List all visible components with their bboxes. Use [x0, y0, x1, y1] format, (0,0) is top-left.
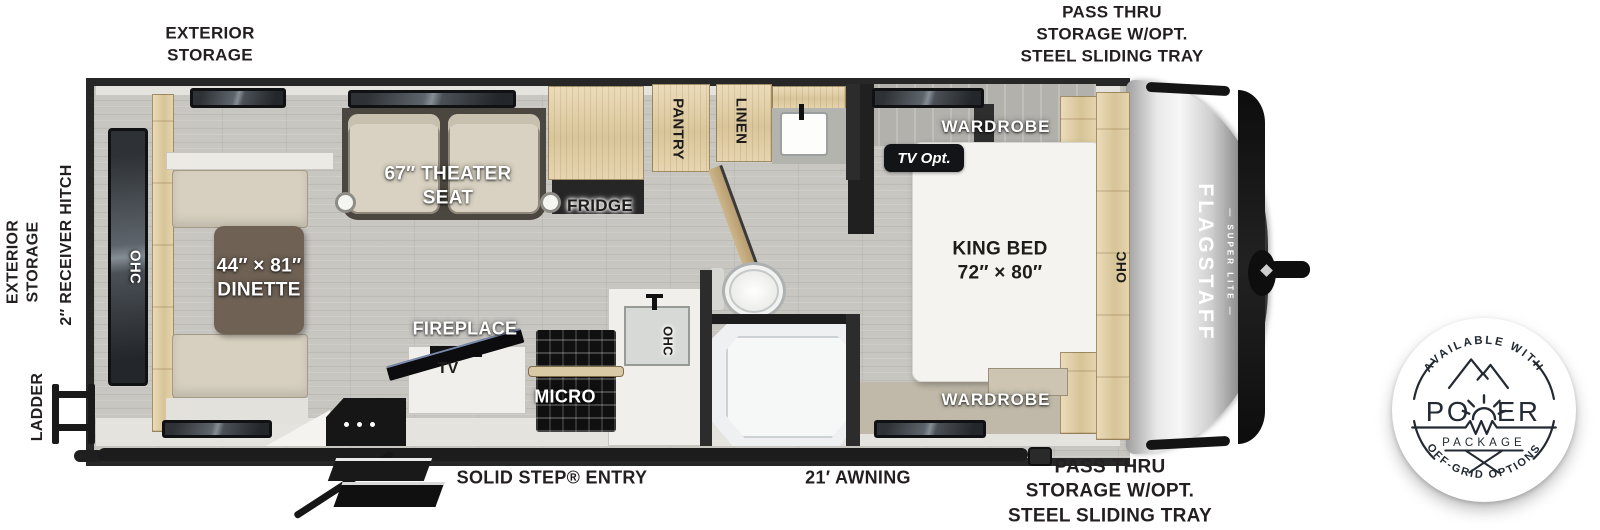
shower-pan-inner	[726, 336, 850, 438]
bath-faucet	[799, 104, 804, 120]
badge-power-left: PO	[1426, 396, 1471, 427]
counter-knob-1	[344, 422, 349, 427]
fridge-cabinet	[548, 86, 644, 180]
label-micro: MICRO	[534, 385, 596, 408]
label-awning: 21′ AWNING	[805, 466, 911, 489]
oven-handle	[528, 366, 624, 377]
label-linen: LINEN	[731, 98, 750, 145]
kitchen-faucet-bar	[646, 294, 663, 298]
tv-opt-label: TV Opt.	[884, 144, 964, 172]
label-ohc-bed: OHC	[1113, 251, 1131, 283]
counter-knob-2	[357, 422, 362, 427]
label-ladder: LADDER	[28, 373, 48, 441]
ladder-rung-bottom	[56, 424, 92, 431]
label-fridge: FRIDGE	[567, 195, 633, 217]
vanity-top	[772, 86, 846, 110]
kitchen-sink	[624, 306, 690, 366]
awning-bar	[98, 448, 1028, 461]
ladder-rung-top	[56, 391, 92, 398]
label-dinette: 44″ × 81″ DINETTE	[217, 255, 302, 304]
kitchen-faucet	[652, 296, 657, 310]
range-micro-unit	[536, 330, 616, 432]
dinette-top-window	[190, 88, 286, 108]
bath-wall-right-bottom	[846, 314, 860, 446]
bath-wall-right-top	[846, 84, 860, 180]
tv-opt-badge: TV Opt.	[884, 144, 964, 172]
label-receiver-hitch: 2″ RECEIVER HITCH	[57, 164, 77, 325]
label-tv: TV	[437, 359, 458, 379]
label-exterior-storage-left: EXTERIOR STORAGE	[4, 220, 45, 304]
badge-package-text: PACKAGE	[1442, 437, 1526, 449]
label-ohc-rear: OHC	[125, 250, 144, 284]
label-king-bed: KING BED 72″ × 80″	[952, 238, 1047, 287]
label-pass-thru-bottom: PASS THRU STORAGE W/OPT. STEEL SLIDING T…	[1008, 456, 1212, 529]
cupholder-left	[335, 192, 356, 213]
bath-wall-left	[700, 270, 712, 446]
flagstaff-logo: FLAGSTAFF	[1193, 183, 1217, 342]
ladder-icon	[52, 384, 98, 444]
badge-arc-top-text: AVAILABLE WITH	[1422, 335, 1546, 375]
label-ohc-kitchen: OHC	[659, 326, 676, 356]
counter-knob-3	[370, 422, 375, 427]
bedroom-top-window	[872, 88, 984, 108]
dinette-shelf	[166, 152, 334, 170]
mountains-icon	[1449, 359, 1508, 388]
shower-rail	[712, 314, 860, 324]
entry-step-1	[328, 458, 432, 481]
svg-text:AVAILABLE WITH: AVAILABLE WITH	[1422, 335, 1546, 375]
label-pantry: PANTRY	[668, 98, 687, 160]
badge-power-right: ER	[1497, 396, 1541, 427]
label-wardrobe-bottom: WARDROBE	[941, 389, 1050, 411]
rear-ohc-cabinets	[152, 94, 174, 432]
label-theater-seat: 67″ THEATER SEAT	[384, 163, 511, 212]
label-wardrobe-top: WARDROBE	[941, 116, 1050, 138]
cupholder-right	[540, 192, 561, 213]
dinette-bench-bottom	[172, 334, 308, 398]
floorplan-canvas: TV Opt. FLAGSTAFF SUPER LITE EXTERIOR ST…	[0, 0, 1600, 530]
sun-dome-icon	[1473, 408, 1495, 419]
theater-window	[348, 90, 516, 108]
label-exterior-storage-top: EXTERIOR STORAGE	[165, 22, 254, 66]
toilet	[722, 262, 786, 320]
entry-step-2	[333, 482, 444, 507]
entry-counter	[326, 398, 406, 446]
label-solid-step-entry: SOLID STEP® ENTRY	[457, 466, 648, 489]
mountains-ridge-icon	[1478, 373, 1488, 379]
label-pass-thru-top: PASS THRU STORAGE W/OPT. STEEL SLIDING T…	[1021, 1, 1204, 66]
power-package-graphic: AVAILABLE WITH PO ER PACKAGE OFF-GRID OP…	[1392, 318, 1576, 502]
bath-sink	[780, 112, 828, 156]
dinette-bench-top	[172, 170, 308, 228]
dinette-bottom-window	[162, 420, 272, 438]
bedroom-bottom-window	[874, 420, 986, 438]
super-lite-logo: SUPER LITE	[1226, 208, 1235, 318]
label-fireplace: FIREPLACE	[413, 317, 518, 340]
hitch-coupler	[1268, 261, 1310, 278]
power-package-badge: AVAILABLE WITH PO ER PACKAGE OFF-GRID OP…	[1392, 318, 1576, 502]
